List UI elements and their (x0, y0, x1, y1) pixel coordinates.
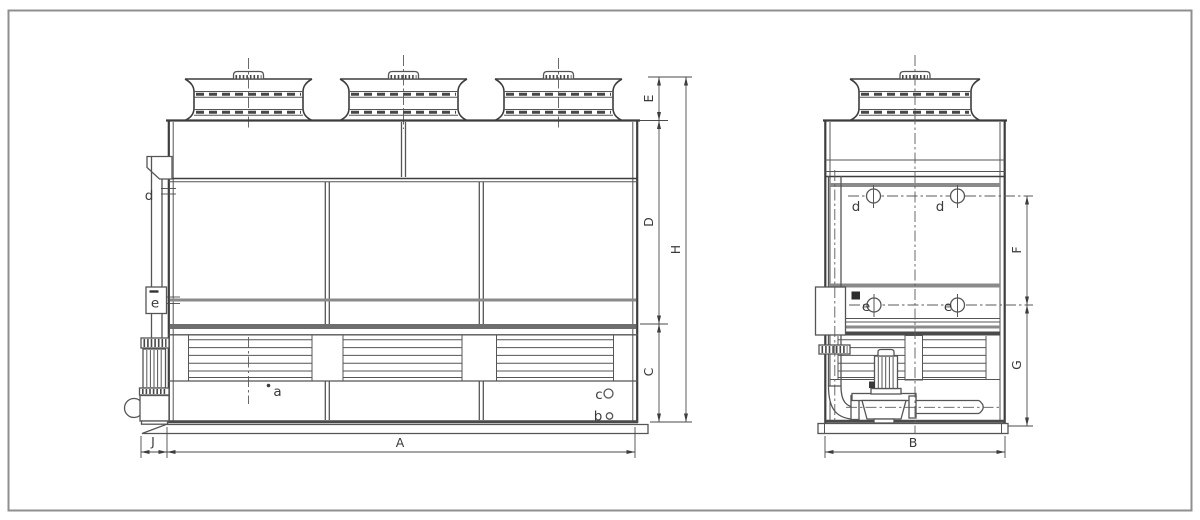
dim-E-label: E (641, 94, 656, 102)
side-basin (818, 421, 1008, 433)
connection-d-label-2: d (936, 199, 945, 215)
sheet-border (9, 11, 1192, 511)
motor-junction-box (869, 382, 875, 389)
connection-b-label: b (594, 409, 603, 425)
sensor-block (852, 292, 861, 300)
pump-motor (140, 349, 170, 395)
volute-body (862, 401, 906, 420)
connection-b-port (606, 413, 612, 419)
connection-a-label: a (273, 384, 281, 400)
dim-D-label: D (641, 217, 656, 227)
dim-G-label: G (1009, 360, 1024, 370)
dim-B-label: B (909, 435, 918, 450)
pipe-support-box (816, 287, 846, 335)
drawing-canvas: d e a c b E D C H (0, 0, 1200, 520)
louver-center-post (905, 336, 923, 381)
dim-F-label: F (1009, 246, 1024, 253)
dim-H-label: H (668, 245, 683, 254)
connection-c-label: c (595, 387, 602, 403)
connection-e-label: e (151, 296, 159, 312)
connection-d-label: d (145, 188, 154, 204)
dim-J-label: J (150, 434, 155, 449)
cooling-tower-technical-drawing: d e a c b E D C H (0, 0, 1200, 520)
dim-C-label: C (641, 367, 656, 376)
base-channel (142, 425, 648, 434)
base-channel (818, 424, 1008, 434)
connection-d-label-1: d (852, 199, 861, 215)
dim-A-label: A (396, 435, 405, 450)
connection-e-label-1: e (862, 299, 870, 315)
connection-a-marker (267, 384, 271, 388)
connection-c-port (604, 389, 613, 398)
connection-e-label-2: e (944, 299, 952, 315)
